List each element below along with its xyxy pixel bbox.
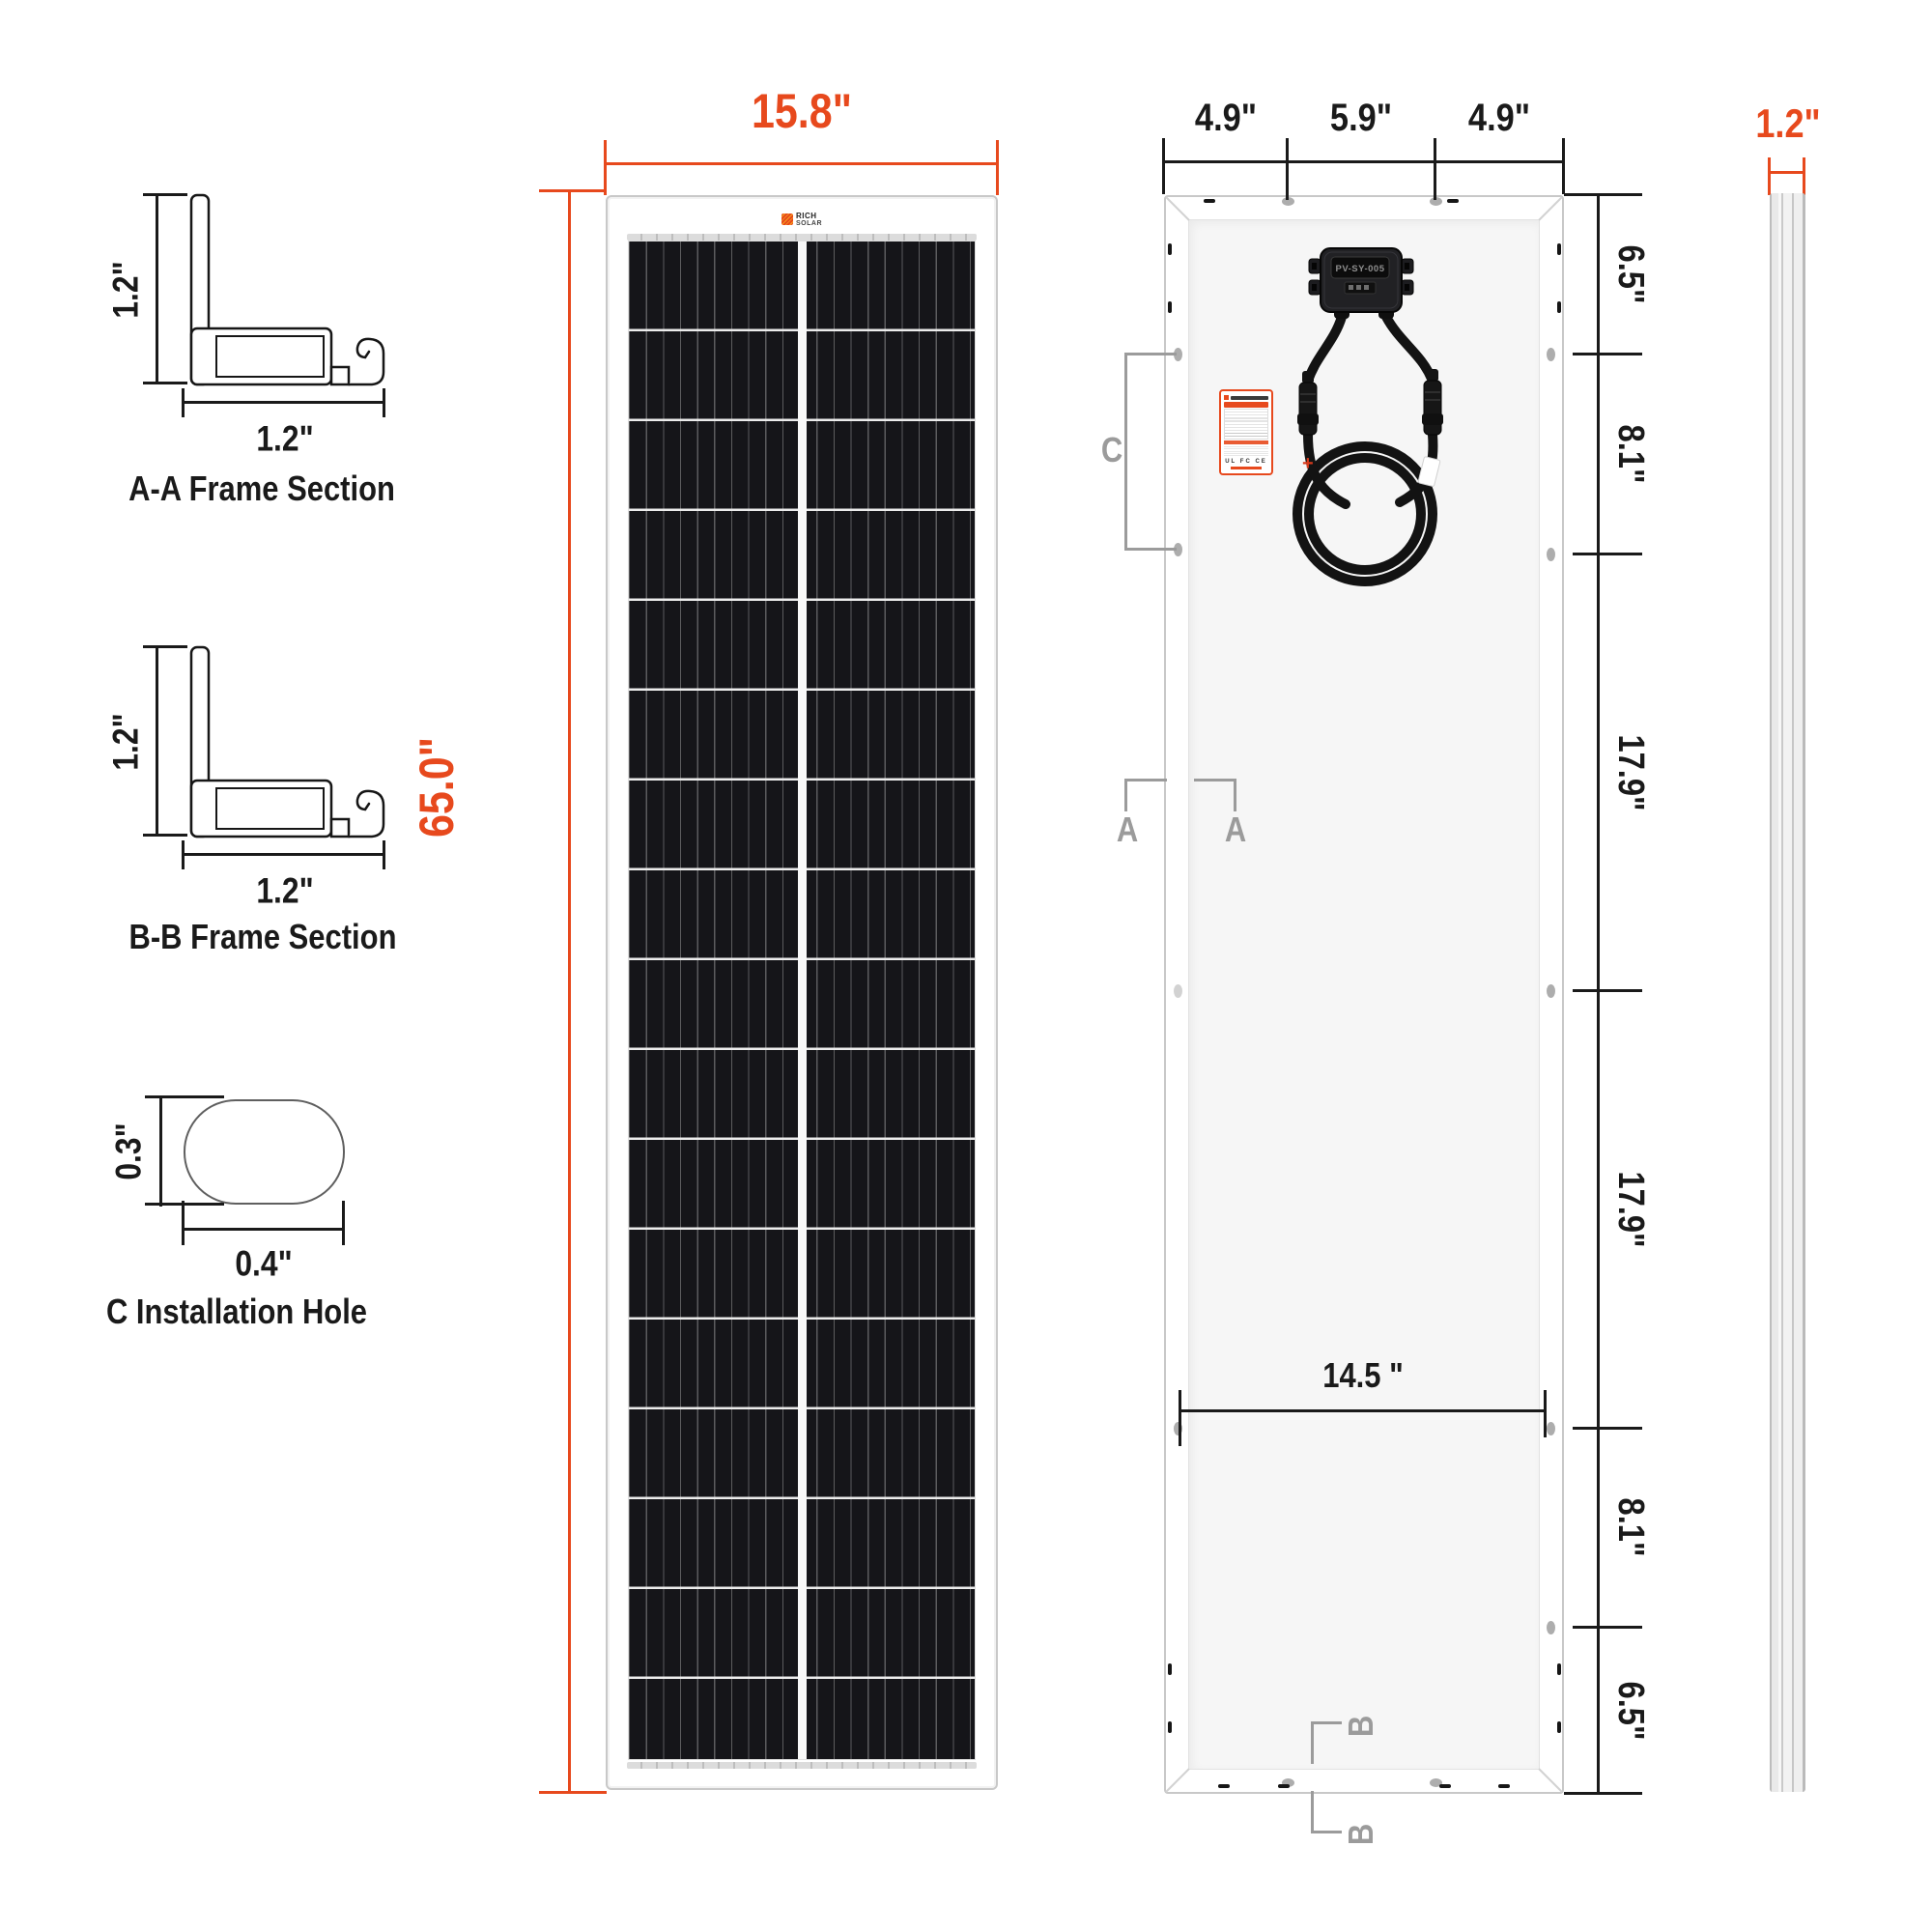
front-cell-grid xyxy=(628,241,976,1760)
frame-section-aa-drawing xyxy=(174,184,396,396)
spec-label-logo-text xyxy=(1231,396,1268,400)
front-width-dim-label: 15.8" xyxy=(752,87,852,135)
cable-polarity-plus: + xyxy=(1302,453,1314,474)
back-top-dim-left: 4.9" xyxy=(1195,99,1257,137)
back-right-dim-4: 17.9" xyxy=(1612,1171,1649,1247)
spec-label-logo-icon xyxy=(1224,395,1229,400)
back-right-tick xyxy=(1564,1792,1642,1795)
marker-c-tick-bottom xyxy=(1124,548,1177,551)
back-right-tick xyxy=(1573,989,1642,992)
mount-hole xyxy=(1547,548,1555,561)
bb-height-tick-bottom xyxy=(143,834,187,837)
hole-caption: C Installation Hole xyxy=(106,1294,367,1329)
mc4-connector-right xyxy=(1422,369,1443,435)
vent-slot xyxy=(1218,1784,1230,1788)
vent-slot xyxy=(1168,243,1172,255)
spec-label-certs: UL FC CE xyxy=(1224,459,1268,465)
bb-width-tick-right xyxy=(383,840,385,869)
marker-a-right-bracket xyxy=(1194,779,1236,781)
marker-b-outer-label: B xyxy=(1344,1824,1378,1845)
vent-slot xyxy=(1557,243,1561,255)
back-hole-span-tick-left xyxy=(1179,1390,1181,1446)
solar-panel-side-view xyxy=(1770,193,1805,1792)
vent-slot xyxy=(1498,1784,1510,1788)
aa-height-tick-bottom xyxy=(143,382,187,384)
bb-caption: B-B Frame Section xyxy=(129,920,397,954)
hole-width-tick-left xyxy=(182,1201,185,1245)
back-right-tick xyxy=(1573,1626,1642,1629)
vent-slot xyxy=(1557,301,1561,313)
back-hole-span-dim-label: 14.5 " xyxy=(1322,1358,1404,1393)
marker-b-inner-bracket xyxy=(1311,1721,1342,1724)
back-right-dim-2: 8.1" xyxy=(1612,425,1649,484)
back-top-dim-right: 4.9" xyxy=(1468,99,1530,137)
front-width-tick-right xyxy=(996,140,999,195)
back-top-tick xyxy=(1286,138,1289,200)
junction-box-label: PV-SY-005 xyxy=(1336,264,1385,274)
jbox-cables xyxy=(1297,317,1433,582)
back-right-tick xyxy=(1564,193,1642,196)
mc4-connector-left xyxy=(1297,371,1319,435)
back-hole-span-dim-line xyxy=(1180,1409,1546,1412)
back-top-tick xyxy=(1562,138,1565,194)
marker-b-outer-bracket xyxy=(1311,1831,1342,1833)
aa-height-tick-top xyxy=(143,193,187,196)
marker-c-label: C xyxy=(1101,433,1122,468)
aa-width-tick-left xyxy=(182,388,185,417)
hole-width-dim-label: 0.4" xyxy=(235,1246,292,1282)
front-cell-center-divider xyxy=(798,241,807,1759)
marker-b-inner-label: B xyxy=(1344,1716,1378,1737)
hole-height-tick-top xyxy=(145,1095,224,1098)
bb-height-tick-top xyxy=(143,645,187,648)
aa-width-dim-line xyxy=(184,401,385,404)
back-top-dim-middle: 5.9" xyxy=(1330,99,1392,137)
front-logo-line1: RICH xyxy=(796,213,822,220)
spec-label-warning-bar xyxy=(1224,440,1268,444)
back-right-tick xyxy=(1573,553,1642,555)
bb-height-dim-line xyxy=(156,647,158,837)
front-bottom-busbar-strip xyxy=(627,1762,977,1769)
marker-c-tick-top xyxy=(1124,353,1177,355)
front-logo: RICH SOLAR xyxy=(608,205,996,234)
vent-slot xyxy=(1557,1721,1561,1733)
rich-solar-logo-icon xyxy=(781,213,793,225)
front-top-busbar-strip xyxy=(627,234,977,241)
marker-a-left-bracket xyxy=(1124,779,1167,781)
back-top-dim-line xyxy=(1164,160,1564,163)
back-hole-span-tick-right xyxy=(1544,1390,1547,1437)
back-right-dim-1: 6.5" xyxy=(1612,245,1649,304)
hole-height-dim-line xyxy=(159,1097,162,1207)
front-height-dim-line xyxy=(568,191,571,1794)
frame-section-bb-drawing xyxy=(174,636,396,848)
marker-a-right-label: A xyxy=(1225,812,1246,847)
front-width-tick-left xyxy=(604,140,607,195)
junction-box: PV-SY-005 xyxy=(1309,248,1413,319)
marker-a-left-drop xyxy=(1124,779,1127,811)
front-logo-line2: SOLAR xyxy=(796,220,822,227)
spec-label: UL FC CE xyxy=(1219,389,1273,475)
front-height-tick-bottom xyxy=(539,1791,607,1794)
back-right-tick xyxy=(1573,1427,1642,1430)
aa-height-dim-label: 1.2" xyxy=(108,261,144,318)
aa-width-tick-right xyxy=(383,388,385,417)
back-right-dim-line xyxy=(1597,195,1600,1794)
hole-height-tick-bottom xyxy=(145,1203,224,1206)
aa-height-dim-line xyxy=(156,195,158,384)
bb-width-dim-line xyxy=(184,853,385,856)
back-right-tick xyxy=(1573,353,1642,355)
cable-tag xyxy=(1418,456,1440,486)
vent-slot xyxy=(1447,199,1459,203)
marker-b-inner-drop xyxy=(1311,1721,1314,1764)
spec-label-web-bar xyxy=(1231,467,1262,469)
aa-caption: A-A Frame Section xyxy=(128,471,395,506)
bb-width-tick-left xyxy=(182,840,185,869)
back-right-dim-6: 6.5" xyxy=(1612,1682,1649,1741)
spec-label-fine-print xyxy=(1224,445,1268,457)
mount-hole xyxy=(1547,1422,1555,1435)
vent-slot xyxy=(1204,199,1215,203)
hole-height-dim-label: 0.3" xyxy=(111,1122,147,1179)
hole-width-dim-line xyxy=(184,1228,345,1231)
vent-slot xyxy=(1278,1784,1290,1788)
mount-hole xyxy=(1174,984,1182,998)
vent-slot xyxy=(1168,1721,1172,1733)
marker-c-line xyxy=(1124,355,1127,551)
installation-hole-drawing xyxy=(184,1099,345,1205)
mount-hole xyxy=(1547,348,1555,361)
side-width-tick-left xyxy=(1768,157,1771,195)
mount-hole xyxy=(1547,1621,1555,1634)
front-height-tick-top xyxy=(539,189,607,192)
dimension-diagram: 1.2" 1.2" A-A Frame Section 1.2" 1.2" B-… xyxy=(0,0,1932,1932)
vent-slot xyxy=(1168,1663,1172,1675)
bb-height-dim-label: 1.2" xyxy=(108,713,144,770)
front-height-dim-label: 65.0" xyxy=(412,737,461,838)
marker-a-left-label: A xyxy=(1117,812,1138,847)
side-width-dim-label: 1.2" xyxy=(1755,103,1820,144)
back-top-tick xyxy=(1162,138,1165,194)
spec-label-title-bar xyxy=(1224,402,1268,408)
front-width-dim-line xyxy=(606,162,998,165)
mount-hole xyxy=(1547,984,1555,998)
vent-slot xyxy=(1557,1663,1561,1675)
spec-label-table xyxy=(1224,409,1268,440)
vent-slot xyxy=(1439,1784,1451,1788)
back-top-tick xyxy=(1434,138,1436,200)
back-right-dim-5: 8.1" xyxy=(1612,1498,1649,1557)
bb-width-dim-label: 1.2" xyxy=(256,873,313,909)
hole-width-tick-right xyxy=(342,1201,345,1245)
aa-width-dim-label: 1.2" xyxy=(256,421,313,457)
vent-slot xyxy=(1168,301,1172,313)
solar-panel-front-view: RICH SOLAR xyxy=(606,195,998,1790)
side-width-tick-right xyxy=(1803,157,1805,195)
back-right-dim-3: 17.9" xyxy=(1612,734,1649,810)
marker-a-right-drop xyxy=(1234,779,1236,811)
marker-b-outer-drop xyxy=(1311,1791,1314,1833)
side-width-dim-line xyxy=(1770,171,1805,174)
